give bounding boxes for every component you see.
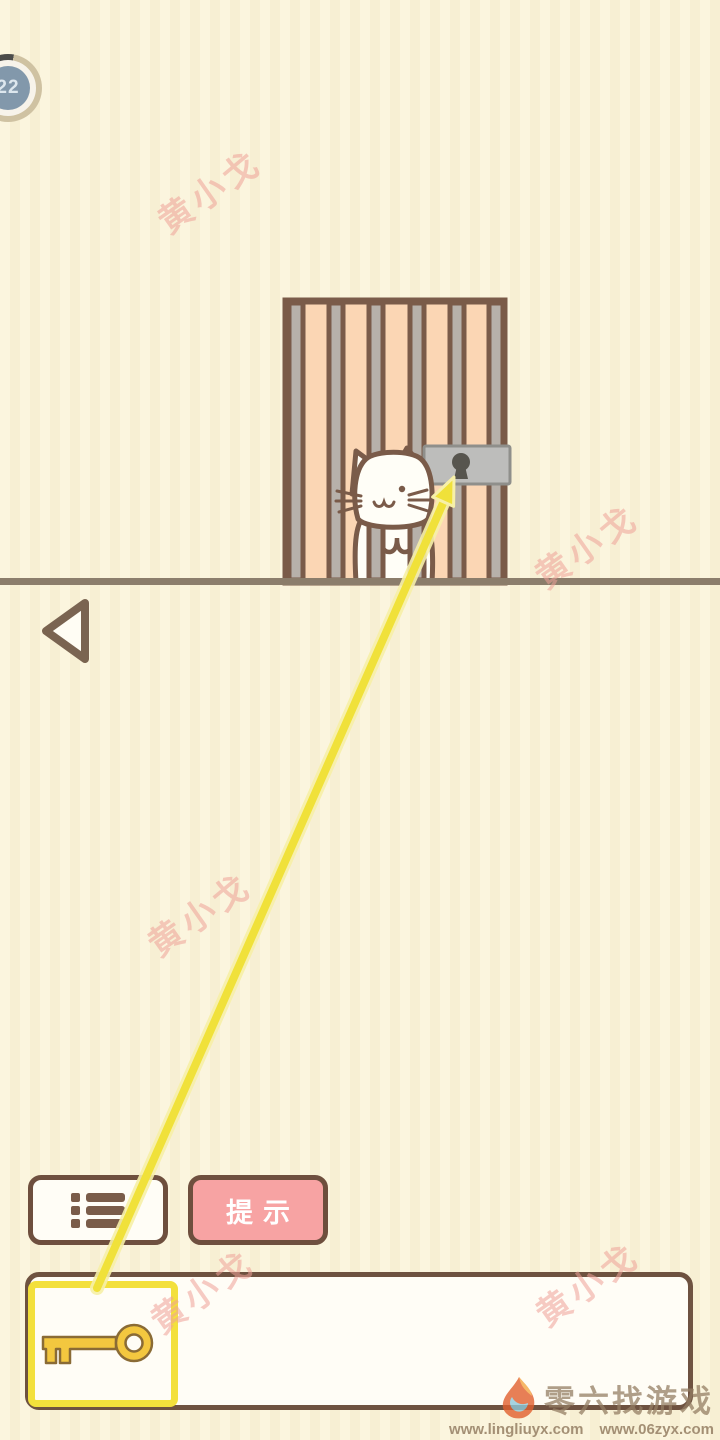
hint-button-label: 提示 — [216, 1191, 300, 1230]
key-icon — [40, 1318, 166, 1370]
hint-button[interactable]: 提示 — [188, 1175, 328, 1245]
menu-button[interactable] — [28, 1175, 168, 1245]
back-arrow-icon[interactable] — [46, 603, 85, 659]
cat-eye — [399, 486, 405, 492]
inventory-bar — [25, 1272, 693, 1410]
list-icon — [71, 1190, 125, 1230]
ground-line — [0, 578, 720, 585]
cat-face — [355, 452, 432, 527]
inventory-slot-key[interactable] — [28, 1281, 178, 1407]
padlock-icon[interactable] — [424, 446, 510, 484]
